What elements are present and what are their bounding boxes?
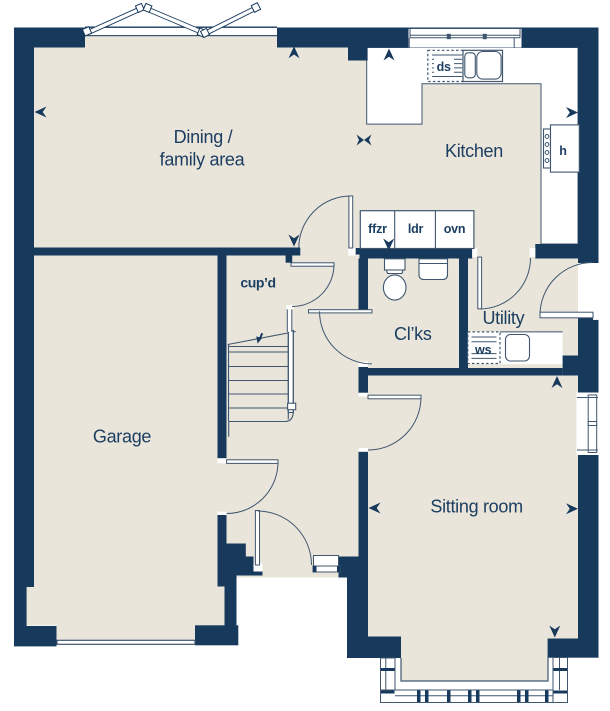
svg-text:ovn: ovn — [444, 222, 466, 236]
svg-text:h: h — [559, 144, 566, 158]
svg-text:Garage: Garage — [93, 427, 152, 447]
svg-text:Sitting room: Sitting room — [430, 497, 522, 517]
svg-text:ds: ds — [437, 60, 451, 74]
svg-text:family area: family area — [160, 150, 246, 170]
svg-text:Kitchen: Kitchen — [445, 141, 503, 161]
svg-text:ffzr: ffzr — [368, 222, 387, 236]
svg-text:Utility: Utility — [482, 308, 524, 328]
svg-text:ldr: ldr — [408, 222, 424, 236]
svg-text:ws: ws — [474, 343, 492, 357]
svg-text:cup’d: cup’d — [240, 275, 275, 291]
svg-text:Cl’ks: Cl’ks — [394, 324, 432, 344]
svg-text:Dining /: Dining / — [174, 127, 233, 147]
